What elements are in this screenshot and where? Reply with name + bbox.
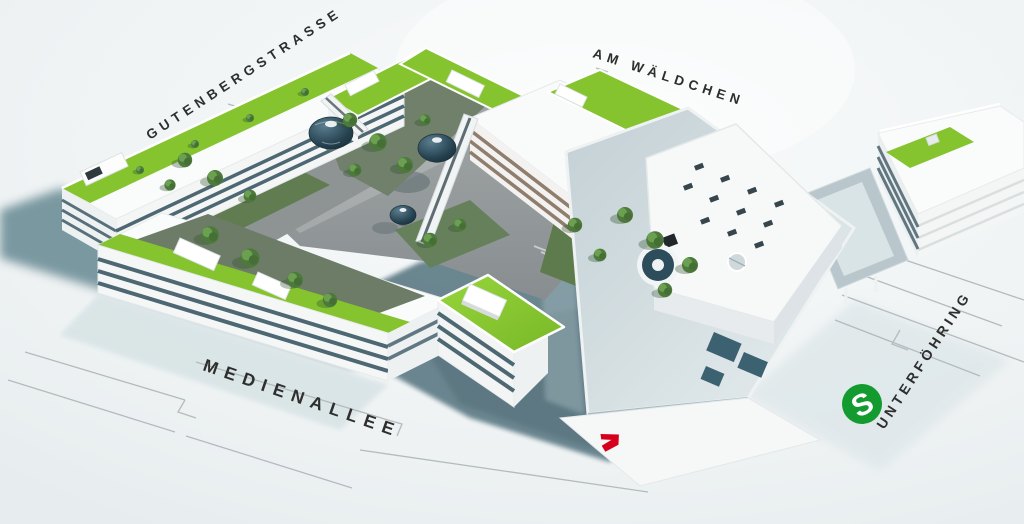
site-plan-canvas: GUTENBERGSTRASSE AM WÄLDCHEN MEDIENALLEE… [0, 0, 1024, 524]
campus-site-rendering: GUTENBERGSTRASSE AM WÄLDCHEN MEDIENALLEE… [0, 0, 1024, 524]
roof-circle-large [637, 244, 679, 286]
dome-shadow [372, 222, 398, 234]
roof-circle-small [728, 253, 746, 271]
